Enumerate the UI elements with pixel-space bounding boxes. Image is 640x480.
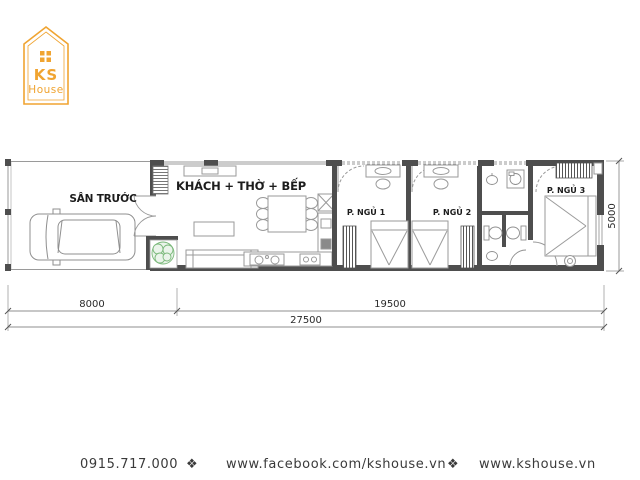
kitchen-counter-icon <box>244 252 332 266</box>
exterior-wall-right <box>597 160 604 271</box>
washing-machine-icon <box>507 170 524 188</box>
double-door-icon <box>134 196 156 236</box>
car-icon <box>30 209 135 265</box>
side-table-icon <box>565 256 576 267</box>
altar-table-icon <box>194 222 234 236</box>
dim-main: 19500 <box>374 299 406 310</box>
flyer-page: KS House <box>0 0 640 480</box>
basin-icon <box>487 173 498 185</box>
planter-box <box>146 236 178 270</box>
nightstand-icon <box>594 163 602 174</box>
wall-bath-bed3 <box>528 166 533 240</box>
wall-living-bed1 <box>332 166 337 266</box>
bedroom2-label: P. NGỦ 2 <box>433 205 471 217</box>
diamond-separator-icon: ❖ <box>186 457 198 472</box>
bedroom3-area <box>533 163 602 267</box>
dim-total: 27500 <box>290 315 322 326</box>
facebook-url: www.facebook.com/kshouse.vn <box>226 457 446 472</box>
kitchen-stove-icon <box>250 254 284 265</box>
bed-icon <box>371 221 408 268</box>
phone-number: 0915.717.000 <box>80 457 178 472</box>
tv-cabinet-icon <box>184 166 236 176</box>
basin-icon <box>487 252 498 261</box>
bedroom1-label: P. NGỦ 1 <box>347 205 386 217</box>
bedroom3-label: P. NGỦ 3 <box>547 183 585 195</box>
bed-icon <box>545 196 596 256</box>
kitchen-sink-icon <box>300 254 320 265</box>
entry-porch <box>134 160 178 270</box>
wardrobe-icon <box>556 163 592 178</box>
plant-icon <box>152 242 174 264</box>
living-label: KHÁCH + THỜ + BẾP <box>176 177 306 193</box>
diamond-separator-icon: ❖ <box>447 457 459 472</box>
bathroom-area <box>482 170 530 266</box>
bed-icon <box>412 221 448 268</box>
wardrobe-icon <box>343 226 356 268</box>
dressing-table-icon <box>424 165 458 189</box>
fridge-icon <box>318 194 334 211</box>
dressing-table-icon <box>366 165 400 189</box>
website-url: www.kshouse.vn <box>479 457 596 472</box>
floor-plan: SÂN TRƯỚC KHÁCH + THỜ + BẾP P. NGỦ 1 P. … <box>0 0 640 480</box>
wall-bed2-bath <box>477 166 482 266</box>
dining-table-icon <box>257 196 318 232</box>
dim-front-yard: 8000 <box>79 299 104 310</box>
toilet-icon <box>484 226 502 240</box>
wardrobe-icon <box>461 226 474 268</box>
door-arc <box>338 166 364 192</box>
kitchen-tall-unit <box>318 213 334 252</box>
toilet-icon <box>507 226 527 240</box>
front-yard-label: SÂN TRƯỚC <box>69 192 137 205</box>
dim-depth: 5000 <box>607 203 618 228</box>
door-arc <box>510 250 526 266</box>
